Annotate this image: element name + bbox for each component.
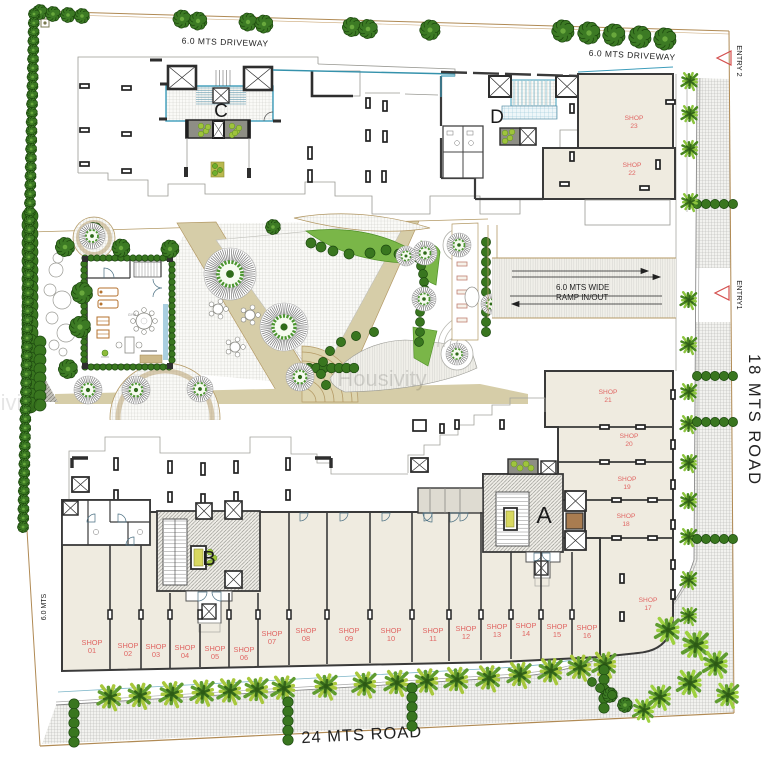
svg-text:RAMP IN/OUT: RAMP IN/OUT	[556, 293, 608, 302]
svg-text:18 MTS ROAD: 18 MTS ROAD	[745, 354, 763, 486]
svg-text:Housivity: Housivity	[337, 366, 426, 391]
svg-text:A: A	[536, 502, 552, 528]
svg-text:C: C	[214, 101, 228, 122]
svg-text:GYM: GYM	[128, 313, 136, 317]
svg-text:D: D	[490, 107, 504, 128]
svg-text:ENTRY1: ENTRY1	[735, 280, 744, 309]
svg-text:B: B	[202, 548, 215, 570]
svg-text:sivity: sivity	[0, 390, 38, 415]
svg-text:ENTRY 2: ENTRY 2	[735, 45, 744, 76]
svg-text:6.0 MTS: 6.0 MTS	[41, 593, 48, 620]
svg-text:6.0 MTS WIDE: 6.0 MTS WIDE	[556, 283, 609, 292]
